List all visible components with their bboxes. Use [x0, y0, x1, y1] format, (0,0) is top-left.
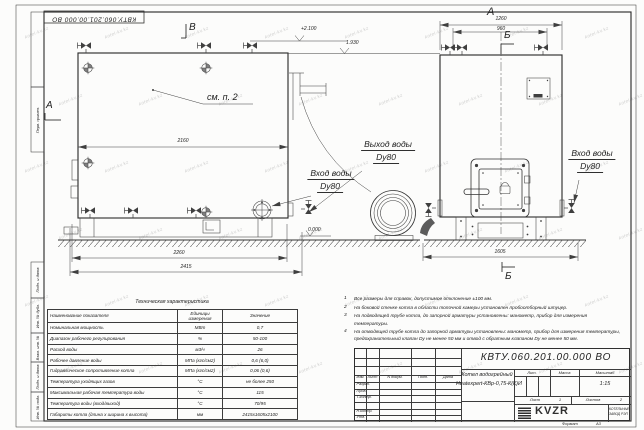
scale-value: 1:15	[600, 382, 611, 388]
title-block-designation: КВТУ.060.201.00.000 ВО	[481, 353, 612, 363]
spec-cell-unit: °С	[178, 387, 223, 398]
spec-cell-unit: мм	[178, 409, 223, 420]
spec-cell-unit: МПа (кгс/см2)	[178, 366, 223, 377]
format-label: Формат	[562, 422, 578, 426]
logo-text: KVZR	[535, 406, 569, 417]
frame-label-inv-dubl: Инв. № дубл.	[36, 303, 40, 328]
sheets-value: 2	[620, 398, 622, 402]
spec-header-value: Значение	[223, 310, 298, 323]
water-inlet-size-front: Dy80	[317, 182, 343, 193]
sheets-label: Листов	[586, 398, 601, 402]
spec-row: Габариты котла (длина х ширина х высота)…	[48, 409, 298, 420]
note-reference: см. п. 2	[207, 93, 238, 102]
spec-cell-value: 0,06 (0,6)	[223, 366, 298, 377]
spec-cell-value: 0,6 (6,0)	[223, 355, 298, 366]
base-skid-front	[64, 218, 272, 237]
row-prov: Пров.	[357, 390, 367, 394]
valve-icon	[244, 42, 258, 53]
spec-row: Рабочее давление водыМПа (кгс/см2)0,6 (6…	[48, 355, 298, 366]
dim-1260: 1260	[495, 17, 506, 22]
section-mark-b-bottom: Б	[505, 272, 512, 282]
note-item: 3На подводящей трубе котла, до запорной …	[344, 313, 630, 327]
spec-table: Наименование показателя Единицы измерени…	[47, 309, 298, 420]
dim-2415: 2415	[180, 265, 191, 270]
frame-label-podp-data-1: Подп. и дата	[36, 267, 40, 292]
spec-row: Расход водым3/ч26	[48, 344, 298, 355]
valve-icon	[188, 207, 202, 218]
valve-icon	[78, 42, 92, 53]
note-text: Все размеры для справок, допустимое откл…	[354, 296, 492, 303]
spec-cell-value: 50-100	[223, 333, 298, 344]
col-data: Дата	[443, 376, 453, 380]
product-name-line1: Котел водогрейный	[461, 373, 512, 378]
note-item: 1Все размеры для справок, допустимое отк…	[344, 296, 630, 303]
section-mark-v: В	[189, 23, 196, 33]
spec-row: Номинальная мощностьМВт0,7	[48, 323, 298, 334]
spec-header-unit: Единицы измерения	[178, 310, 223, 323]
note-number: 2	[344, 305, 354, 312]
spec-header-name: Наименование показателя	[48, 310, 178, 323]
spec-cell-value: не более 250	[223, 376, 298, 387]
furnace-door	[464, 159, 530, 217]
spec-cell-name: Максимальная рабочая температура воды	[48, 387, 178, 398]
top-designation-stamp: КВТУ.060.201.00.000 ВО	[52, 14, 136, 21]
water-inlet-label-front: Вход воды	[307, 169, 354, 180]
center-mark-icon	[82, 62, 95, 75]
center-mark-icon	[200, 62, 213, 75]
drawing-sheet: kotel-kv.kzkotel-kv.kzkotel-kv.kzkotel-k…	[0, 0, 644, 430]
valve-icon	[82, 207, 96, 218]
sheet-label: Лист	[530, 398, 540, 402]
spec-cell-name: Гидравлическое сопротивление котла	[48, 366, 178, 377]
water-outlet-label: Выход воды	[361, 140, 415, 151]
kvzr-logo-icon	[518, 407, 531, 419]
company-line2: ЗАВОД РЭП	[609, 413, 628, 416]
dim-1605: 1605	[494, 250, 505, 255]
lock-icon	[502, 183, 509, 186]
spec-cell-name: Номинальная мощность	[48, 323, 178, 334]
level-mark-2100: +2.100	[301, 27, 316, 32]
notes-list: 1Все размеры для справок, допустимое отк…	[344, 296, 630, 345]
center-mark-icon	[82, 157, 95, 170]
spec-row: Диапазон рабочего регулирования%50-100	[48, 333, 298, 344]
valve-icon	[125, 207, 139, 218]
front-view	[64, 42, 371, 237]
row-razrab: Разраб.	[357, 383, 371, 387]
spec-cell-value: 115	[223, 387, 298, 398]
dim-2260: 2260	[173, 251, 184, 256]
col-list: Лист	[368, 376, 378, 380]
row-nkontr: Н.контр.	[357, 410, 373, 414]
frame-label-vzam-inv: Взам. инв. №	[36, 335, 40, 360]
spec-cell-unit: °С	[178, 398, 223, 409]
valve-icon	[564, 200, 575, 214]
view-label-a: А	[487, 7, 494, 18]
water-inlet-size-side: Dy80	[577, 162, 603, 173]
valve-icon	[535, 44, 549, 55]
sheet-value: 1	[559, 398, 561, 402]
col-podp: Подп.	[418, 376, 428, 380]
spec-cell-name: Диапазон рабочего регулирования	[48, 333, 178, 344]
spec-cell-value: 2415х1605х2100	[223, 409, 298, 420]
boiler-body-front	[78, 53, 288, 218]
section-mark-a: А	[46, 101, 53, 111]
spec-cell-name: Температура воды (вход/выход)	[48, 398, 178, 409]
level-mark-1930: 1.930	[346, 41, 359, 46]
water-outlet-size: Dy80	[373, 153, 399, 164]
frame-label-perv-primen: Перв. примен.	[36, 106, 40, 133]
center-mark-icon	[200, 206, 213, 219]
spec-row: Температура воды (вход/выход)°С70/95	[48, 398, 298, 409]
note-item: 2На боковой стенке котла в области топоч…	[344, 305, 630, 312]
valve-icon	[301, 201, 312, 215]
spec-cell-name: Рабочее давление воды	[48, 355, 178, 366]
spec-cell-unit: м3/ч	[178, 344, 223, 355]
dim-2160: 2160	[177, 139, 188, 144]
side-view	[420, 32, 575, 240]
title-block: КВТУ.060.201.00.000 ВО Котел водогрейный…	[354, 348, 630, 421]
door-handle	[464, 189, 489, 195]
lit-value: И	[518, 382, 522, 388]
valve-icon	[198, 42, 212, 53]
spec-row: Температура уходящих газов°Сне более 250	[48, 376, 298, 387]
frame-label-inv-podl: Инв. № подл.	[36, 394, 40, 419]
spec-cell-name: Температура уходящих газов	[48, 376, 178, 387]
note-item: 4На отводящей трубе котла до запорной ар…	[344, 329, 630, 343]
spec-cell-unit: °С	[178, 376, 223, 387]
format-value: А3	[596, 422, 601, 426]
spec-header-row: Наименование показателя Единицы измерени…	[48, 310, 298, 323]
flue-flange	[371, 191, 416, 241]
section-mark-b-top: Б	[504, 31, 511, 41]
col-izm: Изм.	[356, 376, 364, 380]
valve-icon	[425, 203, 436, 217]
spec-cell-unit: МВт	[178, 323, 223, 334]
note-number: 3	[344, 313, 354, 327]
spec-cell-unit: МПа (кгс/см2)	[178, 355, 223, 366]
row-utv: Утв.	[357, 416, 366, 420]
spec-cell-name: Габариты котла (длина х ширина х высота)	[48, 409, 178, 420]
ground	[58, 240, 586, 247]
frame-label-podp-data-2: Подп. и дата	[36, 364, 40, 389]
mass-label: Масса	[559, 371, 571, 375]
level-mark-zero: 0.000	[308, 228, 321, 233]
spec-cell-name: Расход воды	[48, 344, 178, 355]
note-text: На подводящей трубе котла, до запорной а…	[354, 313, 587, 327]
note-number: 1	[344, 296, 354, 303]
note-number: 4	[344, 329, 354, 343]
lit-label: Лит.	[527, 371, 536, 375]
scale-label: Масштаб	[596, 371, 615, 375]
spec-cell-unit: %	[178, 333, 223, 344]
note-text: На отводящей трубе котла до запорной арм…	[354, 329, 620, 343]
spec-cell-value: 0,7	[223, 323, 298, 334]
spec-table-title: Техническая характеристика	[135, 300, 208, 305]
row-tkontr: Т.контр.	[357, 396, 372, 400]
spec-row: Гидравлическое сопротивление котлаМПа (к…	[48, 366, 298, 377]
spec-cell-value: 26	[223, 344, 298, 355]
spec-row: Максимальная рабочая температура воды°С1…	[48, 387, 298, 398]
water-inlet-label-side: Вход воды	[568, 149, 615, 160]
note-text: На боковой стенке котла в области топочн…	[354, 305, 567, 312]
valve-icon	[454, 44, 468, 55]
product-name-line2: Heatexpert-КВр-0,75-К(К)	[456, 382, 518, 387]
company-line1: КОТЕЛЬНЫЙ	[609, 408, 630, 411]
elbow-pipe	[420, 218, 435, 236]
spec-cell-value: 70/95	[223, 398, 298, 409]
col-ndoc: N докум.	[387, 376, 402, 380]
control-panel	[527, 78, 550, 99]
